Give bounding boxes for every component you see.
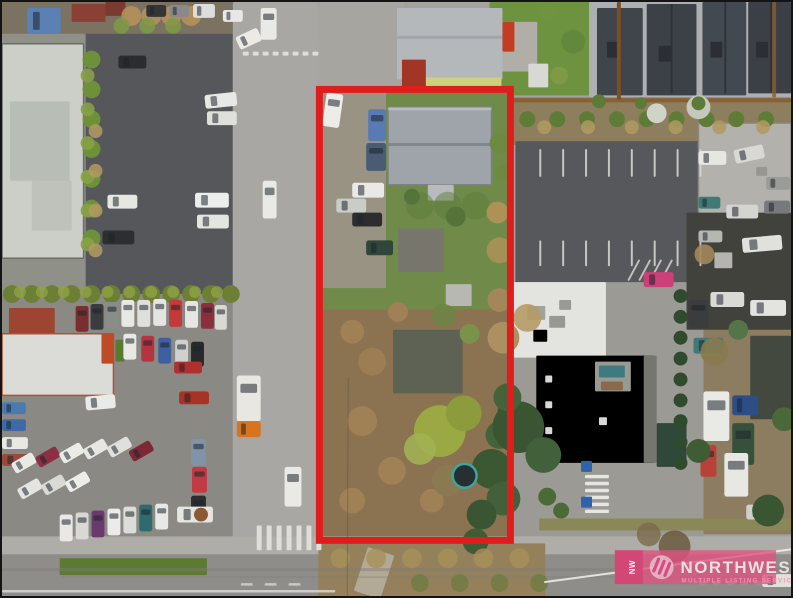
aerial-listing-photo: NW NORTHWEST MULTIPLE LISTING SERVICE xyxy=(0,0,793,598)
crosswalk-top xyxy=(312,52,318,56)
lot-car xyxy=(185,301,198,328)
street-white-car-windshield xyxy=(287,474,299,482)
se-hedge-column xyxy=(674,352,688,366)
lot-white-car xyxy=(85,394,116,410)
sw-dealership-building xyxy=(2,334,113,396)
lot-divider-hedge xyxy=(222,285,240,303)
junk-cream-van xyxy=(726,205,758,219)
crosswalk-top xyxy=(263,52,269,56)
black-car xyxy=(118,56,146,69)
se-grass-verge xyxy=(539,519,791,531)
street-white-van xyxy=(263,181,277,219)
junk-gray-car xyxy=(764,201,790,214)
junk-lot-tree xyxy=(752,495,784,527)
crosswalk-top xyxy=(253,52,259,56)
lot-divider-hedge xyxy=(189,286,201,298)
junk-white-box-windshield xyxy=(757,302,764,313)
white-truck xyxy=(207,111,237,125)
north-strip-box-truck xyxy=(193,4,215,18)
north-strip-car-windshield xyxy=(150,7,154,15)
se-zebra-crossing xyxy=(585,510,609,513)
lot-car-red xyxy=(169,300,182,327)
nw-roof-stain-2 xyxy=(32,181,72,231)
rusty-truck-load xyxy=(194,508,208,522)
street-white-car xyxy=(261,8,277,40)
bottom-brush-grass xyxy=(491,574,509,592)
junk-blue-tarp xyxy=(732,395,758,415)
junk-dark-van xyxy=(689,300,709,328)
bottom-brush-grass xyxy=(474,548,494,568)
black-car xyxy=(118,56,146,69)
porch-bush xyxy=(404,189,420,205)
lot-car xyxy=(153,299,166,326)
junk-white-pickup-windshield xyxy=(707,400,725,410)
junk-lot-tree xyxy=(728,320,748,340)
bottom-row-car xyxy=(123,507,136,534)
white-garden-shed xyxy=(528,64,548,88)
nw-hedge-column xyxy=(83,51,101,69)
parking-line-row xyxy=(539,149,541,177)
lot-car-windshield xyxy=(217,309,225,314)
ne-parking-lot xyxy=(515,141,709,302)
bottom-row-car-purple xyxy=(92,511,105,538)
lot-divider-hedge xyxy=(145,286,157,298)
road-center-dash xyxy=(289,583,301,585)
bottom-brush-grass xyxy=(402,548,422,568)
ne-roof-hvac xyxy=(756,167,767,176)
road-center-dash xyxy=(241,583,253,585)
north-strip-box-truck-windshield xyxy=(197,6,201,16)
lot-red-truck-windshield xyxy=(184,393,190,402)
junk-teal-car xyxy=(698,197,720,209)
nw-roof-stain xyxy=(10,101,70,180)
lot-car-blue xyxy=(158,338,171,364)
ne-bed-bushes xyxy=(728,111,744,127)
junk-white-car xyxy=(698,230,722,242)
bottom-row-car xyxy=(155,504,168,530)
junk-gray-van-windshield xyxy=(770,179,775,188)
parking-line-row xyxy=(654,149,656,177)
se-hedge-column xyxy=(674,393,688,407)
townhouse-front-bush xyxy=(635,97,647,109)
bottom-brush-grass xyxy=(509,548,529,568)
se-hedge-column xyxy=(674,414,688,428)
junk-green-suv-windshield xyxy=(736,431,751,439)
lot-car xyxy=(215,305,227,330)
nw-parking-lot xyxy=(86,34,233,294)
property-white-van xyxy=(352,183,384,198)
north-strip-car-windshield xyxy=(226,12,230,20)
property-green-car xyxy=(366,240,393,255)
lot-white-car-windshield xyxy=(91,398,98,408)
lawn-texture xyxy=(462,192,490,220)
top-block-tree xyxy=(550,67,568,85)
property-green-car-windshield xyxy=(371,243,376,253)
junk-gray-van xyxy=(766,177,790,190)
lot-car xyxy=(123,334,136,360)
big-conifer xyxy=(525,437,561,473)
roadside-brush xyxy=(637,522,661,546)
junk-gray-car xyxy=(764,201,790,214)
ne-bed-bare xyxy=(625,120,639,134)
lot-divider-hedge xyxy=(80,286,92,298)
property-black-car-windshield xyxy=(358,215,364,225)
lot-car xyxy=(153,299,166,326)
mid-green-clump xyxy=(432,304,456,328)
parking-line-row xyxy=(585,240,587,266)
property-white-van xyxy=(352,183,384,198)
property-grayblue-car-windshield xyxy=(369,148,383,154)
street-white-van xyxy=(263,181,277,219)
parking-line-row xyxy=(677,240,679,266)
bottom-row-car xyxy=(107,509,120,536)
junk-white-box xyxy=(750,300,786,316)
lot-car xyxy=(215,305,227,330)
brush-blob xyxy=(347,406,377,436)
nw-hedge-column xyxy=(81,102,95,116)
lot-car xyxy=(2,437,28,449)
lot-car xyxy=(105,302,118,328)
lot-car-blue xyxy=(2,402,26,414)
watermark-badge-text: NW xyxy=(628,560,637,574)
lot-car-windshield xyxy=(125,338,134,343)
bottom-row-car-teal xyxy=(139,505,152,532)
junk-blue-tarp xyxy=(732,395,758,415)
lot-car xyxy=(76,306,89,332)
property-silver-car xyxy=(336,199,366,213)
junk-white-van-windshield xyxy=(716,294,723,304)
lot-car-grayblue xyxy=(191,439,206,466)
top-house-red-deck xyxy=(402,60,426,88)
ne-bed-bushes xyxy=(609,111,625,127)
property-pine xyxy=(467,500,497,530)
property-small-shed xyxy=(446,284,472,306)
townhouse-dormer xyxy=(710,42,722,58)
junk-white-van-windshield xyxy=(749,239,758,250)
lot-car xyxy=(137,300,150,327)
lot-car-blue xyxy=(2,419,26,431)
se-zebra-crossing xyxy=(585,482,609,485)
junk-white-pickup xyxy=(703,391,729,441)
junk-white-box-truck xyxy=(724,453,748,497)
junk-lot-tree xyxy=(694,244,714,264)
lot-divider-hedge xyxy=(101,286,113,298)
crosswalk-bottom xyxy=(297,525,302,550)
street-white-car xyxy=(285,467,302,507)
watermark-brand-text: NORTHWEST xyxy=(681,558,791,577)
white-van-windshield xyxy=(210,96,217,106)
lot-car-blue xyxy=(158,338,171,364)
junk-white-car-windshield xyxy=(703,232,708,240)
se-wall-band xyxy=(644,356,657,463)
ne-bed-bare xyxy=(756,120,770,134)
junk-teal-car xyxy=(698,197,720,209)
se-hedge-column xyxy=(674,289,688,303)
lot-car xyxy=(76,306,89,332)
lot-car-black-windshield xyxy=(193,346,202,351)
crosswalk-top xyxy=(283,52,289,56)
lot-car-red-windshield xyxy=(194,472,204,477)
junk-white-truck xyxy=(698,151,726,165)
townhouse-ridge xyxy=(724,2,726,93)
lot-car-maroon xyxy=(201,303,214,329)
north-strip-trees xyxy=(165,18,181,34)
se-roof-vents xyxy=(545,375,552,382)
ne-bed-bushes xyxy=(549,111,565,127)
se-hedge-column xyxy=(674,310,688,324)
junk-white-box xyxy=(750,300,786,316)
crosswalk-bottom xyxy=(287,525,292,550)
lot-car-red xyxy=(174,362,202,374)
white-van xyxy=(195,193,229,208)
black-car xyxy=(102,230,134,244)
property-green-car xyxy=(366,240,393,255)
se-zebra-crossing xyxy=(585,489,609,492)
bottom-brush-grass xyxy=(451,574,469,592)
lot-car-grayblue-windshield xyxy=(193,444,203,449)
nw-bare-shrubs xyxy=(89,243,103,257)
lot-divider-hedge xyxy=(58,286,70,298)
bottom-brush-grass xyxy=(366,548,386,568)
nw-bare-shrubs xyxy=(89,124,103,138)
lot-car-blue xyxy=(2,402,26,414)
fence-horizontal xyxy=(512,98,791,102)
bottom-row-car-windshield xyxy=(125,511,134,516)
property-blue-car xyxy=(368,109,386,141)
parking-line-row xyxy=(585,149,587,177)
lot-divider-hedge xyxy=(14,286,26,298)
sw-red-shed xyxy=(9,308,55,334)
white-truck-rusty-load-windshield xyxy=(184,509,191,520)
townhouse-ridge xyxy=(671,4,673,93)
black-car-windshield xyxy=(123,58,129,67)
mid-green-clump xyxy=(460,324,480,344)
junk-lot-tree xyxy=(700,338,728,366)
property-black-car xyxy=(352,213,382,227)
ne-bed-bare xyxy=(712,120,726,134)
nw-hedge-column xyxy=(81,69,95,83)
crosswalk-bottom xyxy=(306,525,311,550)
lot-car-windshield xyxy=(78,311,87,316)
se-walk-bush xyxy=(538,488,556,506)
pink-car xyxy=(644,272,674,287)
townhouse-roof-d xyxy=(748,2,791,93)
nw-bare-shrubs xyxy=(89,204,103,218)
townhouse-ridge xyxy=(770,2,772,91)
street-white-car-windshield xyxy=(263,14,274,20)
white-van xyxy=(197,215,229,229)
top-block-tree xyxy=(561,30,585,54)
parking-line-row xyxy=(677,149,679,177)
white-car-windshield xyxy=(113,197,119,207)
bottom-row-car xyxy=(107,509,120,536)
aerial-scene: NW NORTHWEST MULTIPLE LISTING SERVICE xyxy=(2,2,791,596)
property-edge-tree xyxy=(490,133,510,153)
bottom-row-car xyxy=(76,513,89,540)
north-strip-car xyxy=(223,10,243,22)
lot-red-truck xyxy=(179,391,209,404)
property-silver-car xyxy=(336,199,366,213)
parking-line-row xyxy=(562,149,564,177)
se-roof-vent xyxy=(599,417,607,425)
handicap-marking xyxy=(581,461,592,472)
junk-blue-tarp-windshield xyxy=(737,398,742,412)
se-walk-bush xyxy=(553,503,569,519)
fence-vertical xyxy=(617,2,621,99)
junk-white-truck-windshield xyxy=(703,153,709,163)
black-car xyxy=(102,230,134,244)
se-roof-vents xyxy=(545,401,552,408)
townhouse-dormer xyxy=(756,42,768,58)
se-zebra-crossing xyxy=(585,475,609,478)
property-grayblue-car xyxy=(366,143,386,171)
top-block-tree xyxy=(538,3,556,21)
white-car xyxy=(107,195,137,209)
white-van-windshield xyxy=(203,217,209,227)
bottom-row-car xyxy=(155,504,168,530)
property-silver-car-windshield xyxy=(342,201,348,211)
lot-car xyxy=(137,300,150,327)
crosswalk-top xyxy=(293,52,299,56)
black-car-windshield xyxy=(108,233,114,243)
townhouse-front-bush xyxy=(592,94,606,108)
lot-car-windshield xyxy=(107,307,116,312)
townhouse-dormer xyxy=(659,46,671,62)
property-garage xyxy=(398,228,444,272)
lot-car-red xyxy=(141,336,154,362)
parked-box-truck-white-windshield xyxy=(240,384,257,393)
crosswalk-top xyxy=(302,52,308,56)
bottom-row-car-purple-windshield xyxy=(93,515,102,520)
ne-bed-white-shrub xyxy=(647,103,667,123)
crosswalk-top xyxy=(273,52,279,56)
sw-roof-orange-trim xyxy=(101,334,113,364)
trampoline xyxy=(453,464,477,488)
bottom-row-car-windshield xyxy=(157,508,166,513)
lot-car-maroon-windshield xyxy=(203,308,212,313)
property-black-car xyxy=(352,213,382,227)
lot-white-car xyxy=(85,394,116,410)
lot-car-grayblue xyxy=(191,439,206,466)
parked-truck-orange-tail xyxy=(237,421,261,437)
watermark-subtitle-text: MULTIPLE LISTING SERVICE xyxy=(682,578,791,585)
sw-grass-patch xyxy=(115,340,124,362)
yellow-green-tree xyxy=(446,395,482,431)
center-street xyxy=(233,2,319,554)
townhouse-front-bush xyxy=(692,96,706,110)
property-blue-car xyxy=(368,109,386,141)
red-trailer-panel xyxy=(502,22,514,52)
lot-car-blue-windshield xyxy=(160,342,169,347)
bottom-brush-grass xyxy=(438,548,458,568)
parking-line-row xyxy=(539,240,541,266)
north-strip-trees xyxy=(113,18,129,34)
junk-cream-van xyxy=(726,205,758,219)
lot-car-maroon xyxy=(201,303,214,329)
se-hvac-unit xyxy=(549,316,565,328)
road-fog-line xyxy=(2,590,335,592)
lot-car-red-windshield xyxy=(179,363,185,371)
lot-car-black-windshield xyxy=(193,500,203,505)
se-hedge-column xyxy=(674,331,688,345)
north-strip-car xyxy=(169,5,189,17)
top-house-ridge xyxy=(397,36,502,39)
parked-box-truck-white xyxy=(237,375,261,421)
blue-tarp xyxy=(27,8,61,34)
parking-line-row xyxy=(608,240,610,266)
lot-divider-hedge xyxy=(211,286,223,298)
north-strip-box-truck xyxy=(193,4,215,18)
lot-red-truck xyxy=(179,391,209,404)
junk-white-car xyxy=(698,230,722,242)
lot-car xyxy=(105,302,118,328)
se-hedge-column xyxy=(674,435,688,449)
se-hedge-column xyxy=(674,373,688,387)
lot-car xyxy=(91,304,104,330)
lot-car-windshield xyxy=(155,304,164,309)
north-strip-trees xyxy=(139,18,155,34)
street-white-van-windshield xyxy=(265,188,275,196)
north-strip-car xyxy=(146,5,166,17)
blue-tarp-windshield xyxy=(33,12,40,30)
junk-white-pickup xyxy=(703,391,729,441)
lot-divider-hedge xyxy=(36,286,48,298)
brush-blob xyxy=(378,457,406,485)
white-truck-windshield xyxy=(212,113,218,123)
lot-car-red-windshield xyxy=(171,305,180,310)
se-skylight-teal xyxy=(599,366,625,378)
lot-car-blue xyxy=(2,419,26,431)
lot-car-windshield xyxy=(139,305,148,310)
blue-tarp xyxy=(27,8,61,34)
bottom-row-car-windshield xyxy=(62,519,71,524)
lot-car xyxy=(91,304,104,330)
lot-car-red xyxy=(192,467,207,493)
lot-divider-hedge xyxy=(123,286,135,298)
bottom-row-car-purple xyxy=(92,511,105,538)
white-van xyxy=(197,215,229,229)
junk-white-van xyxy=(710,292,744,307)
bottom-row-car xyxy=(60,515,73,542)
parking-line-row xyxy=(562,240,564,266)
bottom-row-car xyxy=(123,507,136,534)
se-hedge-column xyxy=(674,456,688,470)
crosswalk-bottom xyxy=(267,525,272,550)
parking-line-row xyxy=(631,240,633,266)
porch-bush xyxy=(446,207,466,227)
pink-car xyxy=(644,272,674,287)
property-grayblue-car xyxy=(366,143,386,171)
parked-truck-orange-tail xyxy=(237,421,261,437)
property-house-ridge xyxy=(388,143,491,146)
ne-bed-bushes xyxy=(519,111,535,127)
bottom-row-car xyxy=(60,515,73,542)
se-skylight-brown xyxy=(601,381,623,390)
lot-car xyxy=(123,334,136,360)
nw-hedge-column xyxy=(81,136,95,150)
junk-gray-car-windshield xyxy=(769,203,774,212)
top-block-driveway xyxy=(318,2,404,93)
white-van xyxy=(195,193,229,208)
nw-bare-shrubs xyxy=(89,164,103,178)
lot-divider-hedge xyxy=(167,286,179,298)
north-strip-car xyxy=(169,5,189,17)
bare-tree xyxy=(513,304,541,332)
parked-truck-orange-tail-windshield xyxy=(241,424,246,435)
bottom-brush-grass xyxy=(411,574,429,592)
white-car xyxy=(107,195,137,209)
bottom-brush-grass xyxy=(530,574,548,592)
